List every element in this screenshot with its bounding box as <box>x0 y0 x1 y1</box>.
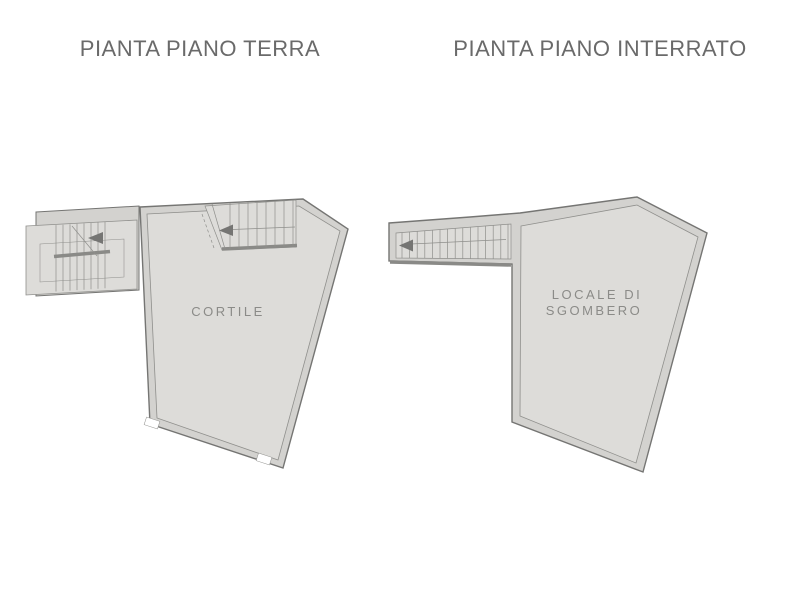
courtyard-label: CORTILE <box>191 304 265 319</box>
floorplan-sheet: PIANTA PIANO TERRA PIANTA PIANO INTERRAT… <box>0 0 800 600</box>
storage-room-label-line1: LOCALE DI <box>552 287 642 302</box>
stairwell-block <box>26 220 137 295</box>
plan-title-ground-floor: PIANTA PIANO TERRA <box>0 36 400 62</box>
storage-room-label-line2: SGOMBERO <box>546 303 643 318</box>
ground-floor-plan-drawing: CORTILE <box>20 190 360 488</box>
storage-room-floor <box>520 205 698 463</box>
plan-title-basement: PIANTA PIANO INTERRATO <box>400 36 800 62</box>
basement-plan-drawing: LOCALE DI SGOMBERO <box>385 190 720 488</box>
